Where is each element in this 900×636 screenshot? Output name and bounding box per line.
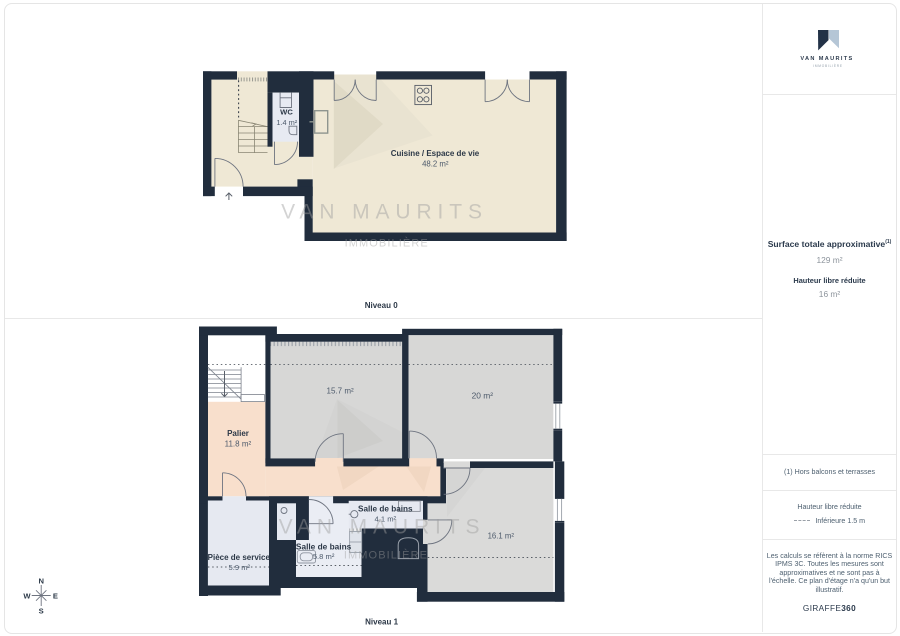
svg-text:WC: WC — [280, 108, 293, 117]
svg-text:48.2 m²: 48.2 m² — [422, 160, 449, 169]
svg-text:Salle de bains: Salle de bains — [358, 505, 413, 514]
svg-text:IMMOBILIÈRE: IMMOBILIÈRE — [344, 549, 428, 562]
svg-text:15.7 m²: 15.7 m² — [327, 386, 354, 395]
svg-text:W: W — [23, 591, 31, 600]
svg-text:Cuisine / Espace de vie: Cuisine / Espace de vie — [391, 149, 480, 158]
svg-text:IMMOBILIÈRE: IMMOBILIÈRE — [345, 237, 429, 250]
svg-text:S: S — [39, 607, 44, 616]
svg-text:11.8 m²: 11.8 m² — [225, 440, 252, 449]
svg-text:VAN MAURITS: VAN MAURITS — [281, 201, 488, 224]
svg-text:5.8 m²: 5.8 m² — [313, 552, 335, 561]
svg-text:16.1 m²: 16.1 m² — [488, 532, 515, 541]
svg-text:Palier: Palier — [227, 429, 249, 438]
svg-text:Niveau 1: Niveau 1 — [365, 618, 398, 627]
svg-text:N: N — [38, 577, 43, 586]
svg-text:Pièce de service: Pièce de service — [208, 553, 271, 562]
svg-text:1.4 m²: 1.4 m² — [276, 118, 297, 127]
svg-text:5.9 m²: 5.9 m² — [229, 563, 251, 572]
svg-text:Niveau 0: Niveau 0 — [365, 301, 398, 310]
svg-text:20 m²: 20 m² — [472, 391, 494, 401]
svg-text:E: E — [53, 591, 58, 600]
svg-text:VAN MAURITS: VAN MAURITS — [279, 516, 486, 539]
